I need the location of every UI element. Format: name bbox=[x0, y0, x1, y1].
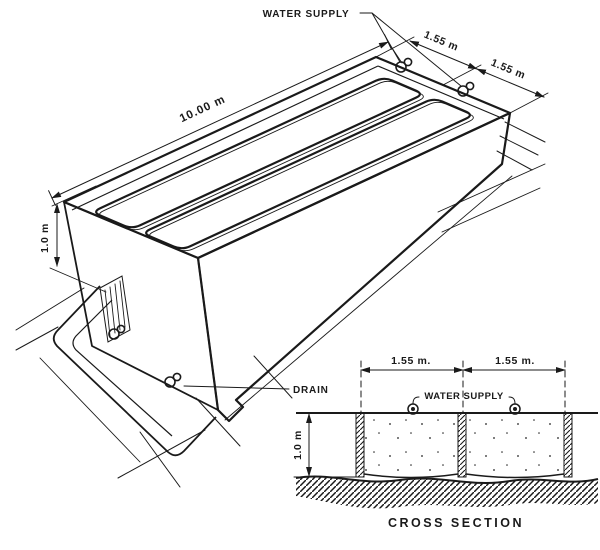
cs-compartment-2 bbox=[466, 413, 564, 475]
drain-gutter bbox=[54, 286, 216, 455]
gutter-head-slab bbox=[100, 276, 130, 342]
drain-annotation: DRAIN bbox=[184, 385, 329, 396]
cs-extension-lines bbox=[361, 361, 565, 412]
drain-label: DRAIN bbox=[293, 385, 329, 396]
cs-width-label-2: 1.55 m. bbox=[495, 355, 535, 367]
rim-inner-edge bbox=[72, 66, 378, 210]
cs-height-dimension: 1.0 m bbox=[292, 414, 356, 477]
cs-compartment-1 bbox=[364, 413, 458, 475]
cs-water-supply-annotation: WATER SUPPLY bbox=[408, 391, 520, 414]
iso-height-label: 1.0 m bbox=[39, 223, 51, 253]
iso-water-supply-label: WATER SUPPLY bbox=[263, 9, 350, 20]
iso-water-supply-annotation: WATER SUPPLY bbox=[263, 9, 461, 86]
iso-height-dimension: 1.0 m bbox=[39, 186, 106, 292]
cs-width-label-1: 1.55 m. bbox=[391, 355, 431, 367]
cross-section-title: CROSS SECTION bbox=[388, 516, 524, 530]
cross-section-view: 1.55 m. 1.55 m. WATER SUPPLY bbox=[292, 355, 598, 530]
iso-width-label-2: 1.55 m bbox=[489, 57, 527, 82]
iso-width-label-1: 1.55 m bbox=[422, 29, 460, 54]
technical-drawing: WATER SUPPLY 10.00 m 1.55 m 1.55 m bbox=[0, 0, 600, 550]
drawing-page: WATER SUPPLY 10.00 m 1.55 m 1.55 m bbox=[0, 0, 600, 550]
cs-height-label: 1.0 m bbox=[292, 430, 304, 460]
cs-earth bbox=[296, 476, 598, 508]
cs-water-supply-label: WATER SUPPLY bbox=[424, 391, 504, 402]
